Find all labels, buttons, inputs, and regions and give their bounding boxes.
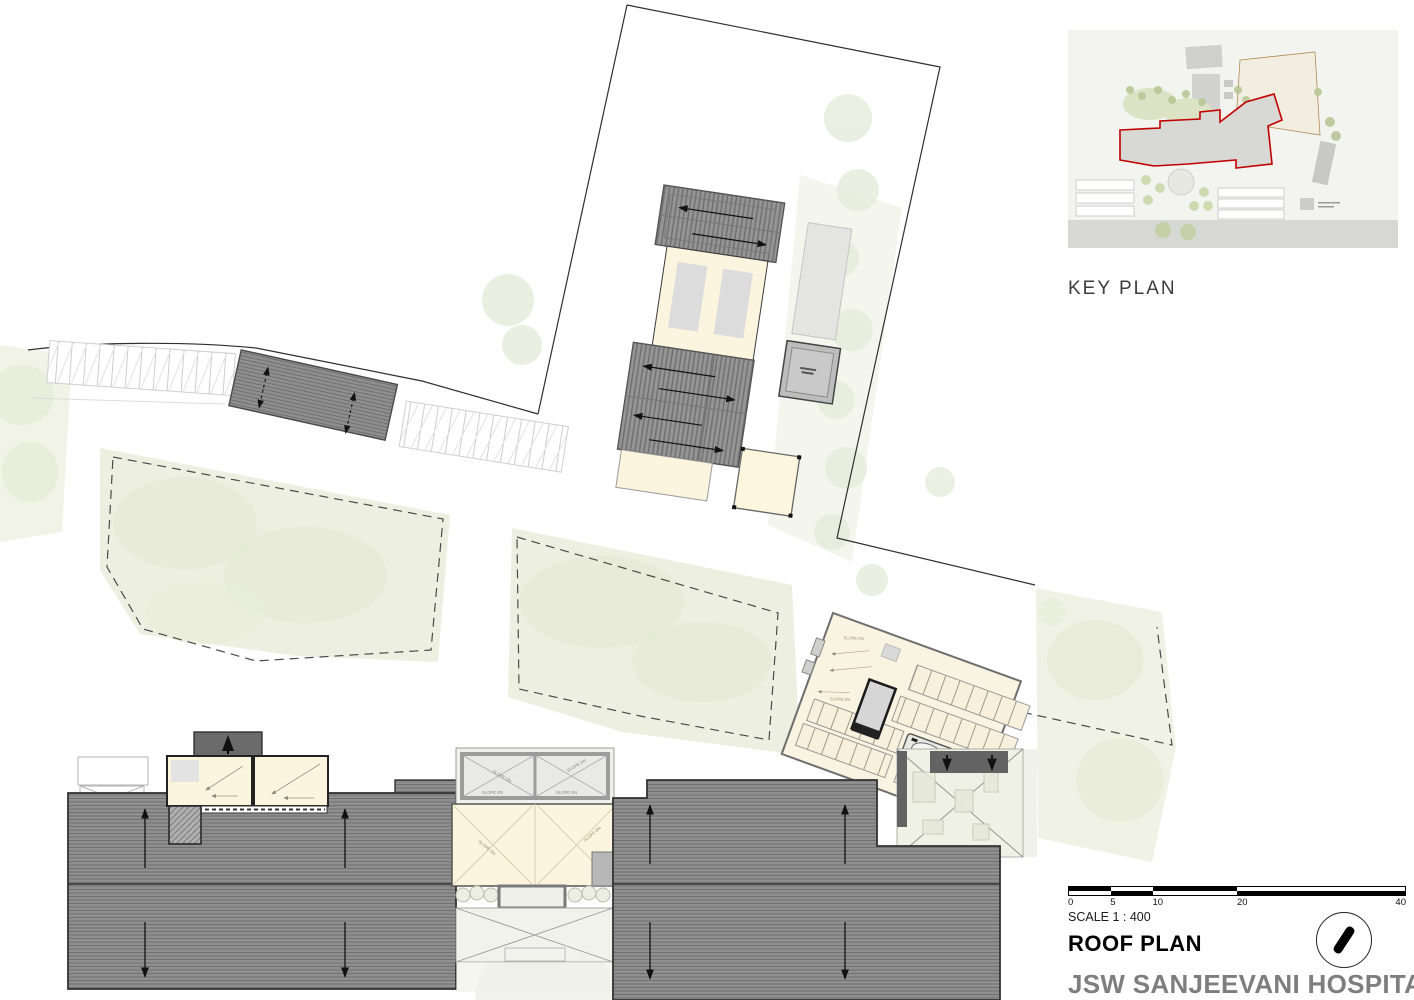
- courtyard: [456, 886, 613, 992]
- north-arrow-icon: [1316, 912, 1372, 968]
- svg-text:SLOPE DN: SLOPE DN: [556, 790, 577, 795]
- key-plan-label: KEY PLAN: [1068, 278, 1398, 300]
- scale-tick: 5: [1110, 897, 1115, 908]
- project-title: JSW SANJEEVANI HOSPITAL: [1068, 969, 1406, 1000]
- scale-bar: [1068, 886, 1406, 896]
- court-slab: [732, 447, 802, 518]
- key-plan-map: [1068, 30, 1398, 263]
- scale-tick: 10: [1153, 897, 1164, 908]
- atrium-edge-roof: [930, 751, 1008, 773]
- central-link-roofs: SLOPE DN SLOPE DN SLOPE DN SLOPE DN SLOP…: [452, 748, 617, 992]
- drawing-sheet: SLOPE DN SLOPE DN SLOPE DN SLOPE DN SLOP…: [0, 0, 1414, 1000]
- svg-text:SLOPE DN: SLOPE DN: [844, 635, 865, 641]
- shaft-roof: [169, 806, 201, 844]
- tank-roof: [779, 341, 841, 404]
- scale-tick: 0: [1068, 897, 1073, 908]
- key-plan: KEY PLAN: [1068, 30, 1398, 300]
- svg-text:SLOPE DN: SLOPE DN: [482, 790, 503, 795]
- atrium-glass-roof: [897, 749, 1037, 857]
- scale-tick: 40: [1395, 897, 1406, 908]
- scale-bar-ticks: 0 5 10 20 40: [1068, 896, 1406, 909]
- scale-tick: 20: [1237, 897, 1248, 908]
- terrace-panel: [254, 756, 328, 806]
- svg-text:SLOPE DN: SLOPE DN: [830, 696, 851, 702]
- southwest-building-roof: [68, 732, 456, 989]
- title-block: 0 5 10 20 40 SCALE 1 : 400 ROOF PLAN JSW…: [1068, 886, 1406, 1000]
- canopy-roof: [229, 350, 398, 441]
